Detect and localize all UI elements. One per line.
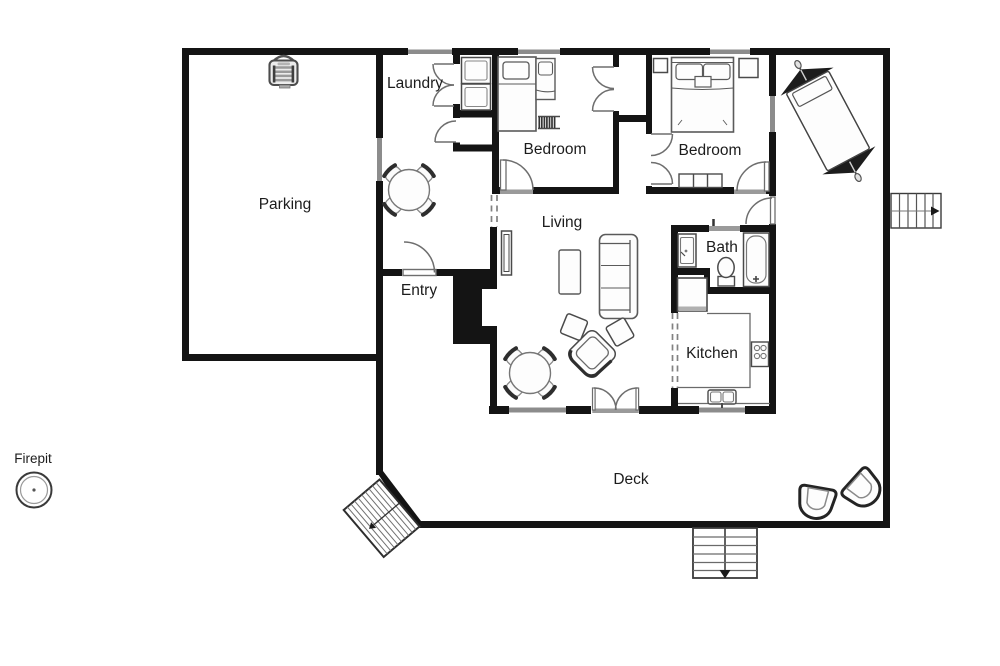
svg-text:Laundry: Laundry xyxy=(387,75,443,92)
svg-text:Bedroom: Bedroom xyxy=(679,142,742,159)
svg-text:Entry: Entry xyxy=(401,282,437,299)
svg-text:Bath: Bath xyxy=(706,239,738,256)
svg-text:Kitchen: Kitchen xyxy=(686,345,738,362)
svg-text:Parking: Parking xyxy=(259,196,312,213)
svg-text:Deck: Deck xyxy=(613,471,649,488)
svg-text:Living: Living xyxy=(542,214,583,231)
svg-text:Firepit: Firepit xyxy=(14,451,52,466)
svg-text:Bedroom: Bedroom xyxy=(524,141,587,158)
